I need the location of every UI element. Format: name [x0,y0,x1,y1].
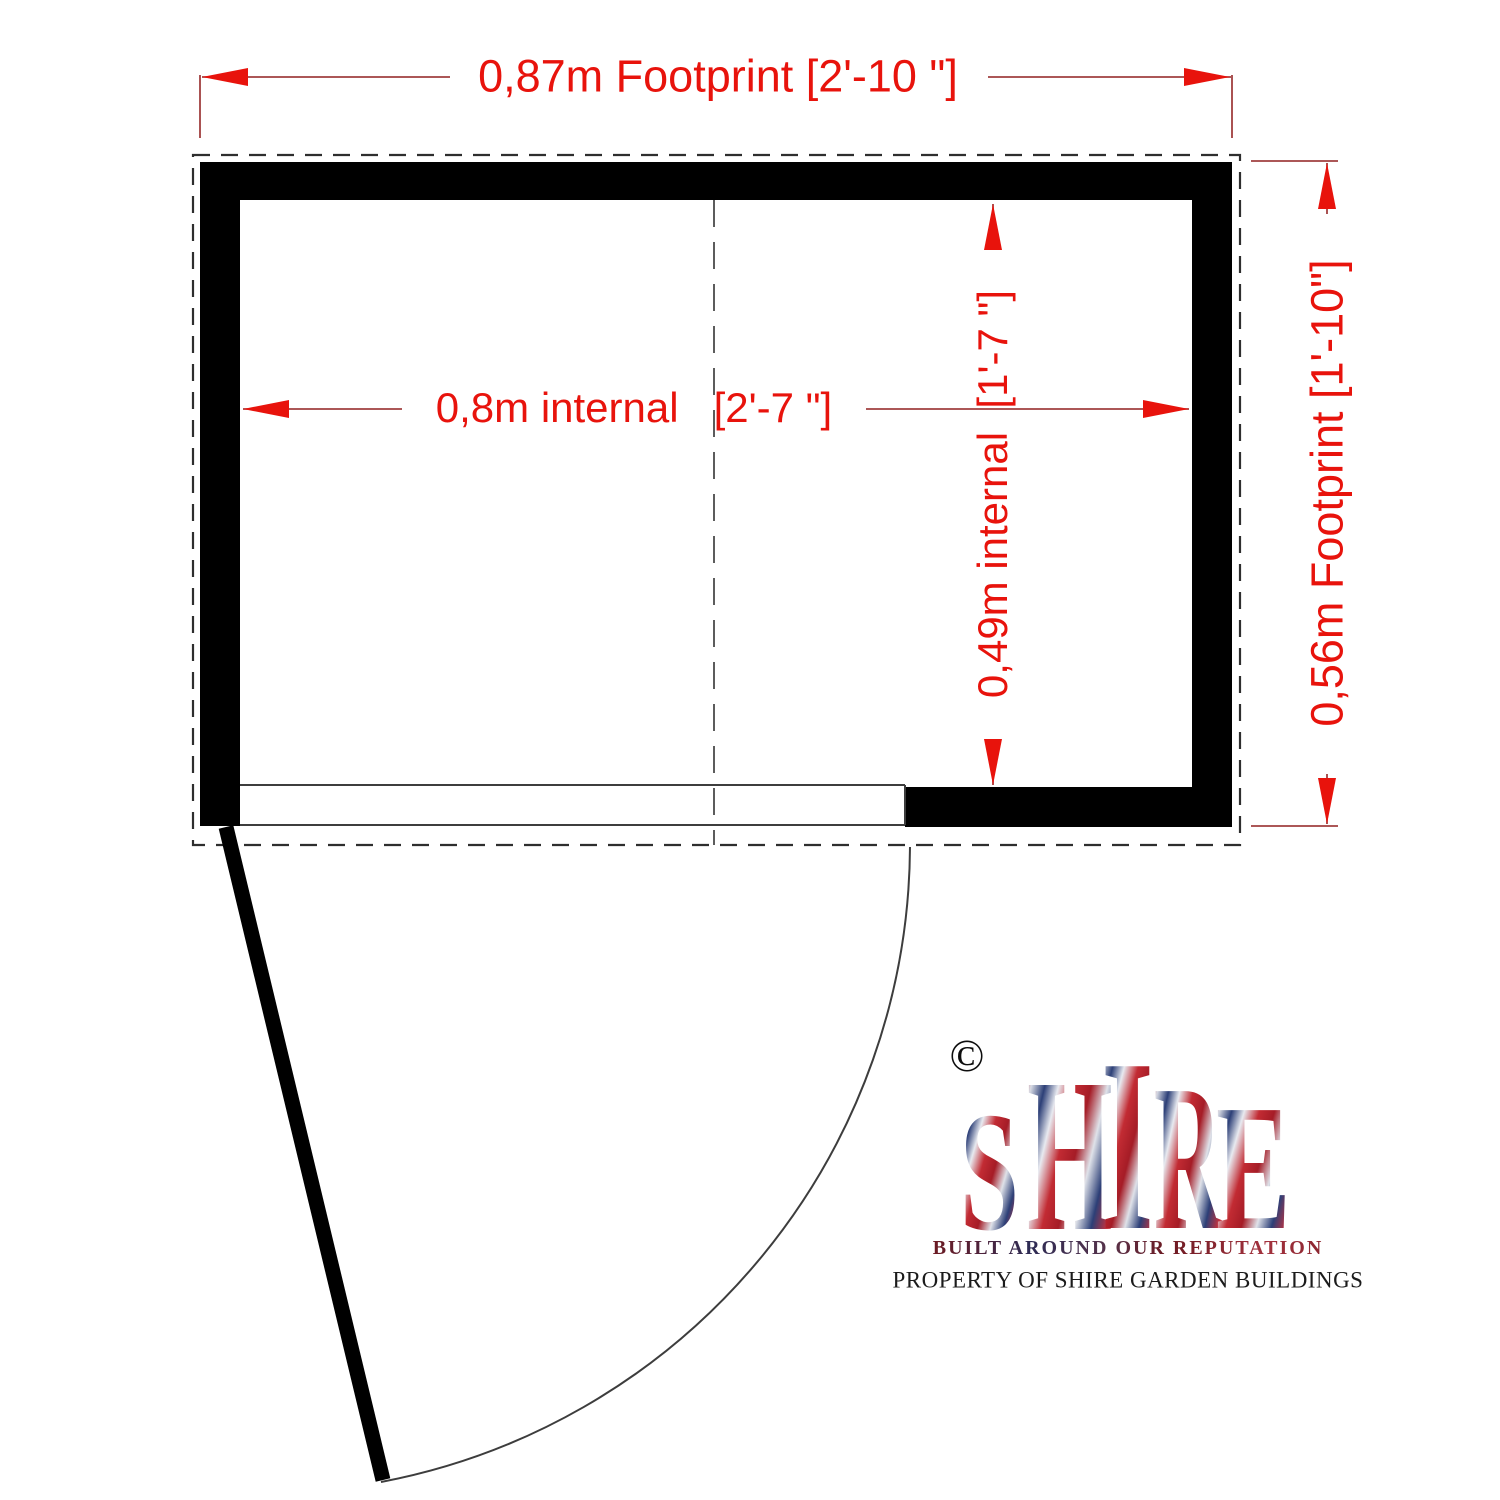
walls [200,162,1232,827]
logo-letter-s: S [960,1086,1019,1257]
floor-plan-canvas: 0,87m Footprint [2'-10 "] 0,8m internal … [0,0,1500,1500]
logo-letter-h: H [1027,1045,1113,1265]
dimension-label-internal-width: 0,8m internal [2'-7 "] [436,387,832,429]
door-leaf [226,827,383,1480]
dimension-label-internal-depth: 0,49m internal [1'-7 "] [972,290,1014,698]
logo-letter-e: E [1216,1078,1290,1258]
arrowhead-down [1318,778,1336,824]
door-threshold [240,785,905,825]
arrowhead-left [202,68,248,86]
arrowhead-right [1184,68,1230,86]
arrowhead-right [1143,400,1189,418]
wall-right [1192,162,1232,827]
arrowhead-left [243,400,289,418]
door-swing-arc [381,847,910,1482]
door [226,827,910,1482]
logo-letter-i: I [1101,1022,1154,1269]
logo-property-notice: PROPERTY OF SHIRE GARDEN BUILDINGS [893,1269,1364,1292]
dimension-label-right-footprint: 0,56m Footprint [1'-10"] [1305,259,1350,726]
arrowhead-down [984,739,1002,785]
logo-tagline: BUILT AROUND OUR REPUTATION [933,1238,1324,1258]
wall-top [200,162,1232,200]
logo-letter-r: R [1154,1054,1222,1263]
arrowhead-up [984,204,1002,250]
dimension-label-top-footprint: 0,87m Footprint [2'-10 "] [478,54,958,99]
arrowhead-up [1318,163,1336,209]
wall-bottom-right [905,787,1232,827]
copyright-symbol: © [950,1033,985,1079]
footprint-dashed-outline [193,155,1240,845]
wall-left [200,162,240,826]
